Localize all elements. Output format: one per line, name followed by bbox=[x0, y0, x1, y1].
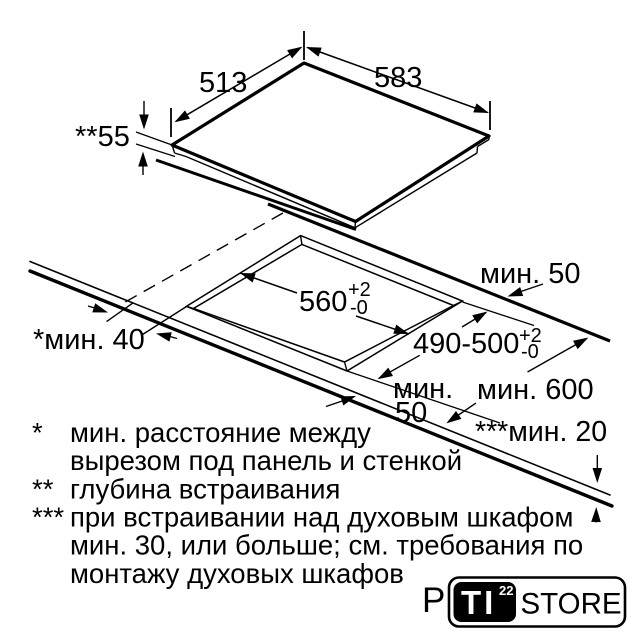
svg-text:*: * bbox=[32, 417, 43, 448]
svg-text:Р: Р bbox=[422, 581, 445, 620]
svg-text:***мин. 20: ***мин. 20 bbox=[475, 416, 607, 448]
svg-text:TI: TI bbox=[461, 584, 496, 621]
svg-text:*мин. 40: *мин. 40 bbox=[33, 324, 145, 356]
svg-text:22: 22 bbox=[499, 583, 513, 598]
svg-text:-0: -0 bbox=[521, 341, 539, 363]
svg-text:STORE: STORE bbox=[521, 588, 622, 621]
svg-text:513: 513 bbox=[199, 67, 247, 99]
svg-text:50: 50 bbox=[395, 397, 427, 429]
svg-text:мин. 30, или больше; см. требо: мин. 30, или больше; см. требования по bbox=[70, 530, 583, 561]
svg-text:560: 560 bbox=[299, 286, 347, 318]
svg-text:монтажу духовых шкафов: монтажу духовых шкафов bbox=[70, 558, 404, 589]
svg-text:мин. 50: мин. 50 bbox=[480, 258, 581, 290]
svg-text:вырезом под панель и стенкой: вырезом под панель и стенкой bbox=[70, 445, 462, 476]
svg-text:мин. 600: мин. 600 bbox=[477, 374, 594, 406]
svg-text:**55: **55 bbox=[75, 121, 130, 153]
svg-text:490-500: 490-500 bbox=[413, 328, 519, 360]
svg-text:583: 583 bbox=[374, 62, 422, 94]
svg-text:глубина встраивания: глубина встраивания bbox=[70, 473, 340, 504]
svg-text:**: ** bbox=[32, 473, 54, 504]
svg-text:***: *** bbox=[32, 502, 64, 533]
svg-text:мин. расстояние между: мин. расстояние между bbox=[70, 417, 371, 448]
svg-text:при встраивании над духовым шк: при встраивании над духовым шкафом bbox=[70, 502, 573, 533]
svg-text:-0: -0 bbox=[350, 297, 368, 319]
